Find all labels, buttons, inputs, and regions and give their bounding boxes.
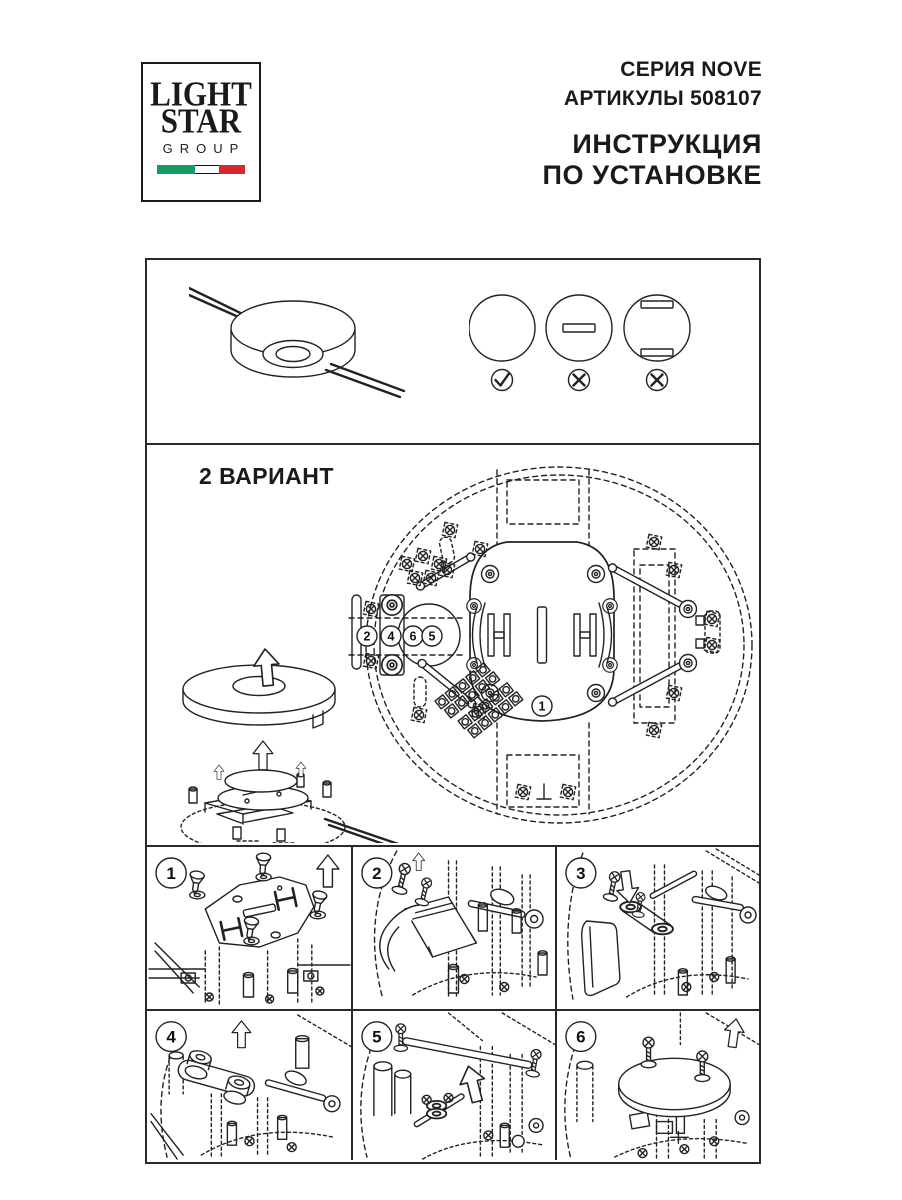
capsule-part xyxy=(414,677,426,707)
strut-upper-right xyxy=(607,562,696,617)
cross-icon xyxy=(569,370,590,391)
callout-5: 5 xyxy=(422,626,442,646)
svg-text:6: 6 xyxy=(410,630,417,644)
section-mounting-symbols xyxy=(147,260,759,445)
lightstar-logo: LIGHT STAR GROUP xyxy=(141,62,261,202)
strut-lower-right xyxy=(607,655,696,708)
post-top xyxy=(577,1061,593,1069)
italy-flag-icon xyxy=(157,165,245,174)
callout-6: 6 xyxy=(403,626,423,646)
step-panel-5: 5 xyxy=(351,1009,555,1160)
check-icon xyxy=(492,370,513,391)
step-number-badge: 1 xyxy=(156,858,186,888)
rim-right-connector xyxy=(696,611,720,653)
callout-4: 4 xyxy=(381,626,401,646)
step-5-drawing: 5 xyxy=(353,1011,555,1160)
header: СЕРИЯ NOVE АРТИКУЛЫ 508107 ИНСТРУКЦИЯ ПО… xyxy=(542,55,762,191)
step-1-drawing: 1 xyxy=(147,847,351,1009)
cross-icon xyxy=(647,370,668,391)
step-3-drawing: 3 xyxy=(557,847,759,1009)
hidden-posts xyxy=(169,1015,351,1157)
step-number-badge: 6 xyxy=(566,1022,596,1052)
instruction-frame: 2 ВАРИАНТ xyxy=(145,258,761,1164)
callout-2: 2 xyxy=(357,626,377,646)
canopy-center-slot xyxy=(546,295,612,391)
pivot-rod xyxy=(692,884,756,923)
section-variant-2: 2 ВАРИАНТ xyxy=(147,445,759,847)
bottom-channel xyxy=(497,723,589,814)
posts-left xyxy=(374,1062,411,1116)
step-number-badge: 2 xyxy=(362,858,392,888)
svg-text:1: 1 xyxy=(166,864,176,883)
post-top xyxy=(169,1052,183,1059)
step-6-drawing: 6 xyxy=(557,1011,759,1160)
canopy-orientation-symbols xyxy=(469,288,729,408)
base-hidden-lines xyxy=(205,939,312,1005)
svg-text:5: 5 xyxy=(429,630,436,644)
remove-arrow-icon xyxy=(317,855,339,887)
svg-text:3: 3 xyxy=(576,864,585,883)
flag-green-stripe xyxy=(157,165,195,174)
round-cover xyxy=(619,1058,730,1116)
step-panel-2: 2 xyxy=(351,847,555,1009)
central-plate: 1 xyxy=(467,542,617,721)
step-4-drawing: 4 xyxy=(147,1011,351,1160)
arrow-icon xyxy=(232,1021,251,1048)
screw-cluster xyxy=(399,522,457,585)
step-number-badge: 5 xyxy=(362,1022,392,1052)
bracket-box xyxy=(380,897,477,971)
cover-plate xyxy=(205,877,314,947)
gasket-ring xyxy=(225,770,297,792)
step-panel-1: 1 xyxy=(147,847,351,1009)
step-number-badge: 3 xyxy=(566,858,596,888)
arrow-icon xyxy=(722,1018,745,1049)
post-right xyxy=(296,1036,309,1069)
step-2-drawing: 2 xyxy=(353,847,555,1009)
canopy-ok xyxy=(469,295,535,391)
title-line-2: ПО УСТАНОВКЕ xyxy=(542,160,762,191)
svg-text:1: 1 xyxy=(539,700,546,714)
fixture-ring-body xyxy=(183,665,335,728)
screw-icon xyxy=(641,1037,656,1068)
svg-text:5: 5 xyxy=(372,1028,381,1047)
link-bracket xyxy=(176,1049,257,1107)
step-panel-3: 3 xyxy=(555,847,759,1009)
page-title: ИНСТРУКЦИЯ ПО УСТАНОВКЕ xyxy=(542,129,762,191)
step-number-badge: 4 xyxy=(156,1022,186,1052)
rim-arc xyxy=(361,1048,371,1157)
side-panel xyxy=(582,921,620,995)
series-label: СЕРИЯ NOVE xyxy=(542,55,762,84)
variant-heading: 2 ВАРИАНТ xyxy=(199,463,334,490)
flag-white-stripe xyxy=(195,165,219,174)
svg-text:4: 4 xyxy=(388,630,395,644)
articles-label: АРТИКУЛЫ 508107 xyxy=(542,84,762,113)
standoffs xyxy=(678,957,735,995)
hidden-posts xyxy=(423,1013,555,1159)
logo-word-group: GROUP xyxy=(143,141,259,156)
instruction-page: LIGHT STAR GROUP СЕРИЯ NOVE АРТИКУЛЫ 508… xyxy=(0,0,902,1200)
ceiling-fixture-cable-drawing xyxy=(189,284,407,406)
svg-text:4: 4 xyxy=(166,1028,176,1047)
rim-arc xyxy=(565,1047,575,1159)
mounting-plate-top-view: 1 xyxy=(347,453,767,838)
base-edge xyxy=(151,1114,183,1159)
step-panel-6: 6 xyxy=(555,1009,759,1160)
arrow-icon xyxy=(413,853,425,871)
flag-red-stripe xyxy=(219,165,245,174)
step-panel-4: 4 xyxy=(147,1009,351,1160)
base-platform xyxy=(149,943,350,1003)
svg-text:6: 6 xyxy=(576,1028,585,1047)
logo-word-star: STAR xyxy=(143,105,259,135)
title-line-1: ИНСТРУКЦИЯ xyxy=(542,129,762,160)
cable-clamp xyxy=(537,784,551,799)
svg-text:2: 2 xyxy=(372,864,381,883)
svg-text:2: 2 xyxy=(364,630,371,644)
canopy-two-slots xyxy=(624,295,690,391)
plate-callout-1: 1 xyxy=(532,696,552,716)
pivot-rod xyxy=(265,1068,340,1111)
steps-grid: 1 xyxy=(147,847,759,1162)
